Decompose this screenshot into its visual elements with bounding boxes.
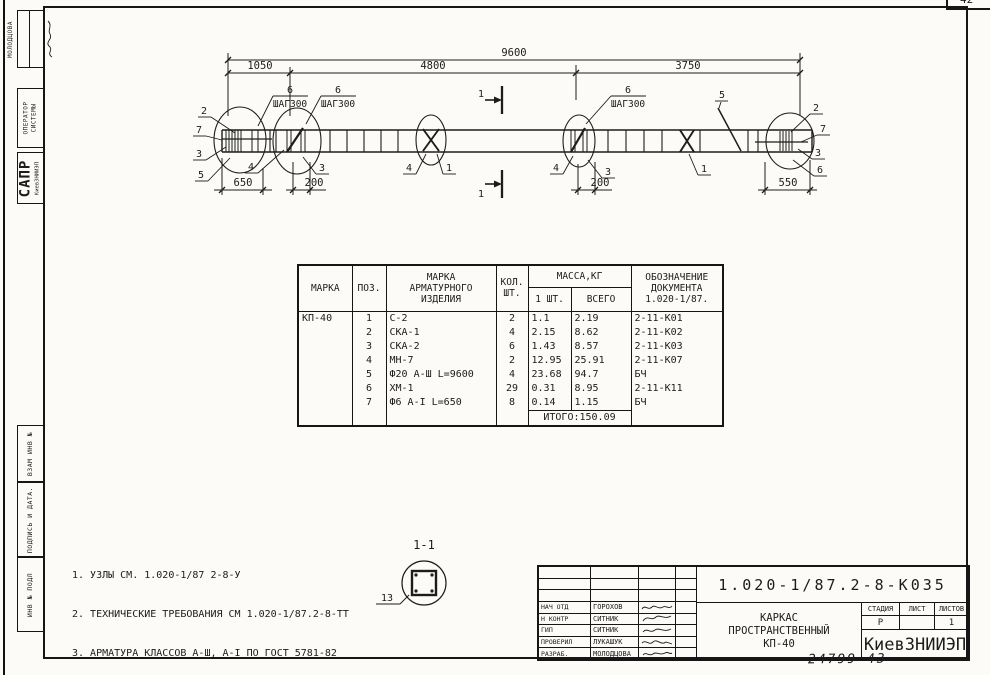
callout-pos4-a: 4 bbox=[248, 162, 254, 173]
stirrup-ticks bbox=[270, 130, 758, 152]
step-text-1: ШАГ300 bbox=[273, 99, 308, 110]
drawing-title: КАРКАС ПРОСТРАНСТВЕННЫЙ КП-40 bbox=[697, 603, 862, 659]
section-bar-callout: 13 bbox=[381, 593, 393, 604]
callout-pos3-left: 3 bbox=[196, 149, 202, 160]
stamp-author-name: МОЛОДЦОВА bbox=[7, 20, 14, 57]
dim-left-end: 650 bbox=[234, 177, 253, 189]
document-number: 1.020-1/87.2-8-К035 bbox=[697, 567, 968, 603]
stamp-inv-label: ИНВ № ПОДЛ bbox=[27, 572, 35, 616]
signature bbox=[639, 637, 676, 648]
section-title: 1-1 bbox=[413, 538, 435, 552]
dim-seg1: 1050 bbox=[247, 60, 272, 72]
stamp-sapr-box: САПР КиевЗНИИЭП bbox=[17, 152, 44, 204]
step-pos-1: 6 bbox=[287, 85, 293, 96]
dim-right-end: 550 bbox=[779, 177, 798, 189]
step-pos-3: 6 bbox=[625, 85, 631, 96]
stamp-operator-label: ОПЕРАТОР СИСТЕМЫ bbox=[23, 102, 39, 135]
diagonal-bar-end bbox=[715, 101, 741, 151]
dim-step-left: 200 bbox=[305, 177, 324, 189]
signature bbox=[639, 625, 676, 636]
step-pos-2: 6 bbox=[335, 85, 341, 96]
stamp-sapr-label: САПР bbox=[17, 159, 33, 197]
approval-empty-row bbox=[539, 567, 696, 579]
callout-pos2-left: 2 bbox=[201, 106, 207, 117]
callout-pos7-left: 7 bbox=[196, 125, 202, 136]
signature bbox=[639, 648, 676, 659]
callout-pos7-right: 7 bbox=[820, 124, 826, 135]
stamp-podpis-box: ПОДПИСЬ И ДАТА. bbox=[17, 482, 44, 557]
callout-pos4-b: 4 bbox=[406, 163, 412, 174]
dim-seg2: 4800 bbox=[420, 60, 445, 72]
table-row: 3 СКА-2 6 1.43 8.57 2-11-К03 bbox=[298, 340, 723, 354]
stage-sheet-header: СТАДИЯ ЛИСТ ЛИСТОВ bbox=[862, 603, 968, 616]
listov-label: ЛИСТОВ bbox=[935, 603, 968, 615]
table-row: 2 СКА-1 4 2.15 8.62 2-11-К02 bbox=[298, 326, 723, 340]
table-itogo: ИТОГО:150.09 bbox=[528, 410, 631, 426]
callout-pos3-a: 3 bbox=[319, 163, 325, 174]
callout-pos2-right: 2 bbox=[813, 103, 819, 114]
stamp-vzam-label: ВЗАМ ИНВ № bbox=[27, 431, 35, 475]
callout-pos6-right: 6 bbox=[817, 165, 823, 176]
dimension-lines bbox=[225, 53, 803, 116]
callout-pos5-right: 5 bbox=[719, 90, 725, 101]
callout-pos4-c: 4 bbox=[553, 163, 559, 174]
signature bbox=[639, 614, 676, 625]
stadia-value: Р bbox=[862, 616, 900, 629]
note-line: 1. УЗЛЫ СМ. 1.020-1/87 2-8-У bbox=[72, 569, 349, 582]
table-row: 6 ХМ-1 29 0.31 8.95 2-11-К11 bbox=[298, 382, 723, 396]
notes-block: 1. УЗЛЫ СМ. 1.020-1/87 2-8-У 2. ТЕХНИЧЕС… bbox=[72, 543, 349, 675]
col-header-mass-one: 1 ШТ. bbox=[528, 287, 571, 311]
archive-code: 24799 43 bbox=[808, 652, 887, 668]
note-line: 3. АРМАТУРА КЛАССОВ А-Ш, А-I ПО ГОСТ 578… bbox=[72, 647, 349, 660]
cell-marka: КП-40 bbox=[298, 311, 352, 426]
stamp-vzam-box: ВЗАМ ИНВ № bbox=[17, 425, 44, 482]
stamp-sapr-org: КиевЗНИИЭП bbox=[34, 161, 40, 194]
section-marker-bottom: 1 bbox=[478, 170, 502, 200]
page-edge-line bbox=[3, 0, 5, 675]
svg-text:1: 1 bbox=[478, 189, 484, 200]
step-text-3: ШАГ300 bbox=[611, 99, 646, 110]
col-header-qty: КОЛ. ШТ. bbox=[496, 265, 528, 311]
section-marker-top: 1 bbox=[478, 86, 502, 114]
list-label: ЛИСТ bbox=[900, 603, 935, 615]
drawing-sheet: 42 МОЛОДЦОВА ОПЕРАТОР СИСТЕМЫ САПР КиевЗ… bbox=[0, 0, 990, 675]
approval-empty-row bbox=[539, 579, 696, 591]
stage-sheet-values: Р 1 bbox=[862, 616, 968, 630]
step-text-2: ШАГ300 bbox=[321, 99, 356, 110]
approval-row: ПРОВЕРИЛ ЛУКАШУК bbox=[539, 637, 696, 649]
dim-seg3: 3750 bbox=[675, 60, 700, 72]
approval-row: Н КОНТР СИТНИК bbox=[539, 614, 696, 626]
table-row: 4 МН-7 2 12.95 25.91 2-11-К07 bbox=[298, 354, 723, 368]
col-header-mass: МАССА,КГ bbox=[528, 265, 631, 287]
table-row: 7 Ф6 А-I L=650 8 0.14 1.15 БЧ bbox=[298, 396, 723, 411]
approval-empty-row bbox=[539, 590, 696, 602]
callout-pos5-left: 5 bbox=[198, 170, 204, 181]
stamp-podpis-label: ПОДПИСЬ И ДАТА. bbox=[27, 486, 35, 552]
stamp-inv-box: ИНВ № ПОДЛ bbox=[17, 557, 44, 632]
col-header-doc: ОБОЗНАЧЕНИЕ ДОКУМЕНТА 1.020-1/87. bbox=[631, 265, 723, 311]
listov-value: 1 bbox=[935, 616, 968, 629]
callout-pos3-right: 3 bbox=[815, 148, 821, 159]
note-line: 2. ТЕХНИЧЕСКИЕ ТРЕБОВАНИЯ СМ 1.020-1/87.… bbox=[72, 608, 349, 621]
title-block: НАЧ ОТД ГОРОХОВ Н КОНТР СИТНИК ГИП СИТНИ… bbox=[537, 565, 970, 661]
author-signature bbox=[45, 19, 55, 59]
list-value bbox=[900, 616, 935, 629]
dim-total: 9600 bbox=[501, 47, 526, 59]
section-1-1-detail: 1-1 13 bbox=[366, 536, 476, 618]
svg-text:1: 1 bbox=[478, 89, 484, 100]
callout-pos1-b: 1 bbox=[701, 164, 707, 175]
table-total-row: ИТОГО:150.09 bbox=[298, 410, 723, 426]
stamp-author-box: МОЛОДЦОВА bbox=[17, 10, 44, 68]
beam-elevation-drawing: 9600 1050 4800 3750 bbox=[180, 38, 840, 213]
table-row: 5 Ф20 А-Ш L=9600 4 23.68 94.7 БЧ bbox=[298, 368, 723, 382]
col-header-poz: ПОЗ. bbox=[352, 265, 386, 311]
approval-row: НАЧ ОТД ГОРОХОВ bbox=[539, 602, 696, 614]
approval-grid: НАЧ ОТД ГОРОХОВ Н КОНТР СИТНИК ГИП СИТНИ… bbox=[539, 567, 697, 659]
approval-row: ГИП СИТНИК bbox=[539, 625, 696, 637]
left-end-detail bbox=[193, 107, 272, 181]
approval-row: РАЗРАБ. МОЛОДЦОВА bbox=[539, 648, 696, 659]
dim-step-right: 200 bbox=[591, 177, 610, 189]
col-header-marka: МАРКА bbox=[298, 265, 352, 311]
stadia-label: СТАДИЯ bbox=[862, 603, 900, 615]
beam-outline bbox=[222, 130, 812, 152]
col-header-mass-total: ВСЕГО bbox=[571, 287, 631, 311]
signature bbox=[639, 602, 676, 613]
callout-pos1-a: 1 bbox=[446, 163, 452, 174]
stamp-operator-box: ОПЕРАТОР СИСТЕМЫ bbox=[17, 88, 44, 148]
col-header-item: МАРКА АРМАТУРНОГО ИЗДЕЛИЯ bbox=[386, 265, 496, 311]
page-number: 42 bbox=[960, 0, 973, 6]
parts-table: МАРКА ПОЗ. МАРКА АРМАТУРНОГО ИЗДЕЛИЯ КОЛ… bbox=[297, 264, 724, 427]
table-row: КП-40 1 С-2 2 1.1 2.19 2-11-К01 bbox=[298, 311, 723, 326]
